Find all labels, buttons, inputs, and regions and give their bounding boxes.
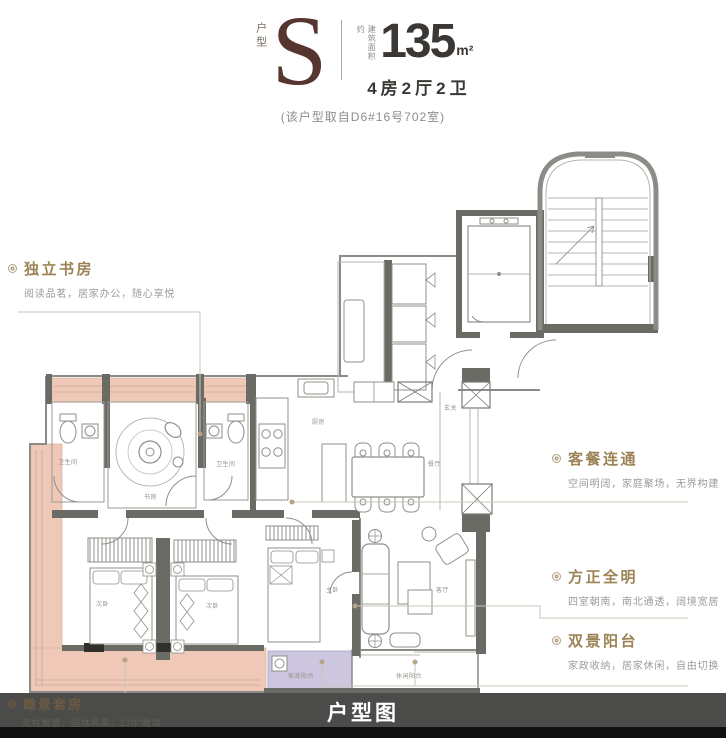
footer-caption: 户型图 — [0, 697, 726, 727]
bedroom-mid — [174, 518, 238, 644]
annotation-study: 独立书房 阅读品茗，居家办公，随心享悦 — [8, 258, 175, 300]
laundry-balcony — [268, 651, 352, 693]
label-study: 书房 — [144, 493, 157, 501]
stairwell — [540, 152, 656, 330]
ring-icon — [8, 264, 17, 273]
header-divider — [341, 20, 342, 80]
ring-icon — [552, 572, 561, 581]
annotation-dining-title: 客餐连通 — [568, 448, 638, 469]
label-bedroom-left: 次卧 — [96, 600, 109, 608]
bedroom-left — [88, 518, 152, 644]
dining-set — [352, 382, 432, 512]
type-letter: S — [272, 12, 328, 90]
layout-text: 4房2厅2卫 — [355, 74, 473, 99]
entry-foyer — [338, 262, 556, 392]
annotation-study-title: 独立书房 — [24, 258, 94, 279]
label-kitchen: 厨房 — [312, 418, 325, 426]
type-label: 户型 — [253, 22, 269, 50]
source-note: (该户型取自D6#16号702室) — [281, 108, 445, 125]
living-room — [362, 527, 475, 648]
floorplan-page: 户型 S 建筑面积约 135 m² 4房2厅2卫 (该户型取自D6#16号702… — [0, 0, 726, 738]
annotation-balcony-desc: 家政收纳，居家休闲，自由切换 — [552, 657, 719, 672]
bathroom-right — [204, 402, 248, 500]
door-gaps — [98, 332, 510, 519]
label-living: 客厅 — [436, 586, 449, 594]
kitchen — [256, 379, 346, 502]
annotation-bright-title: 方正全明 — [568, 566, 638, 587]
annotation-bright: 方正全明 四室朝南，南北通透，阔境宽居 — [552, 566, 719, 608]
label-dining: 餐厅 — [428, 460, 441, 468]
elevator — [468, 218, 530, 322]
label-leisure-balcony: 休闲阳台 — [396, 672, 422, 680]
annotation-balcony: 双景阳台 家政收纳，居家休闲，自由切换 — [552, 630, 719, 672]
annotation-bright-desc: 四室朝南，南北通透，阔境宽居 — [552, 593, 719, 608]
right-bay-windows — [440, 382, 492, 514]
label-master: 主卧 — [326, 586, 339, 594]
area-prefix: 建筑面积约 — [355, 25, 377, 69]
master-bedroom — [266, 518, 352, 642]
annotation-dining: 客餐连通 空间明阔，家庭聚场，无界构建 — [552, 448, 719, 490]
area-unit: m² — [456, 42, 473, 58]
annotation-study-desc: 阅读品茗，居家办公，随心享悦 — [8, 285, 175, 300]
label-laundry-balcony: 家政阳台 — [288, 672, 314, 680]
ring-icon — [552, 636, 561, 645]
label-foyer: 玄关 — [444, 404, 457, 412]
label-bedroom-mid: 次卧 — [206, 602, 219, 610]
study-room — [108, 402, 196, 508]
ring-icon — [552, 454, 561, 463]
label-bath-right: 卫生间 — [216, 460, 236, 468]
annotation-balcony-title: 双景阳台 — [568, 630, 638, 651]
area-value: 135 — [380, 22, 454, 61]
annotation-dining-desc: 空间明阔，家庭聚场，无界构建 — [552, 475, 719, 490]
label-bath-left: 卫生间 — [58, 458, 78, 466]
header: 户型 S 建筑面积约 135 m² 4房2厅2卫 (该户型取自D6#16号702… — [0, 12, 726, 125]
